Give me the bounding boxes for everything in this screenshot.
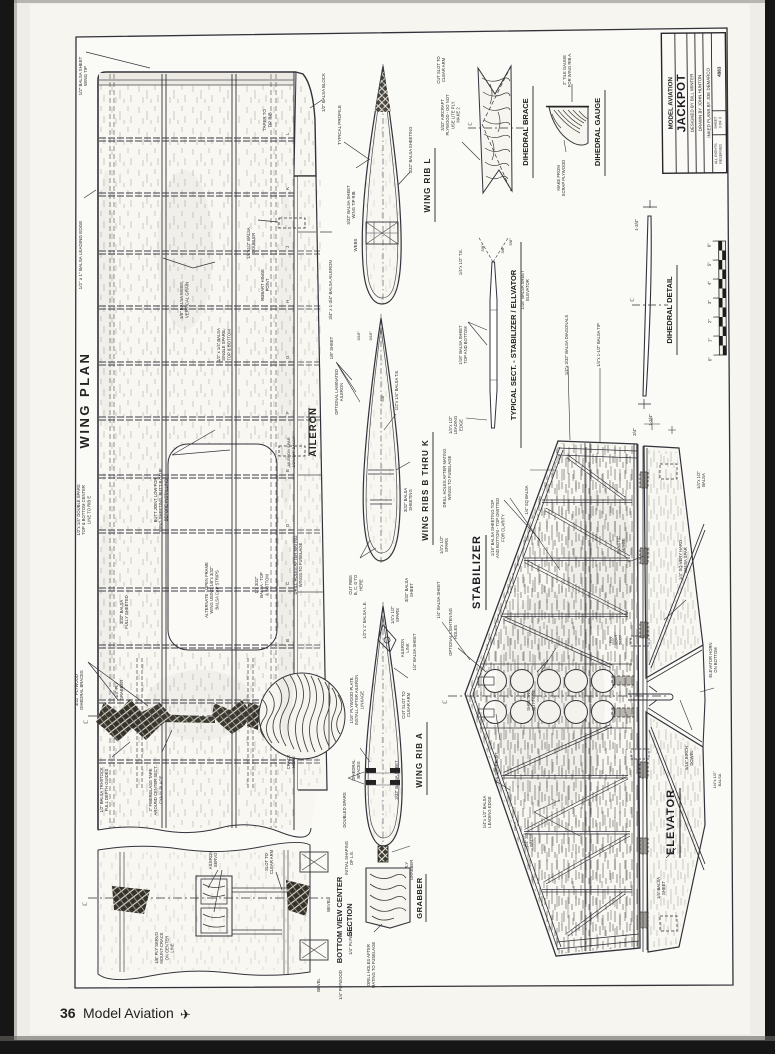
svg-text:FULLY SHEETED: FULLY SHEETED xyxy=(124,595,129,629)
svg-text:1/4" SQ BALSA: 1/4" SQ BALSA xyxy=(524,485,529,514)
svg-text:LINKAGE: LINKAGE xyxy=(359,691,364,709)
svg-text:1/4" PLYWOOD: 1/4" PLYWOOD xyxy=(338,970,343,1000)
svg-text:ℂ: ℂ xyxy=(83,720,90,724)
svg-text:ℂ: ℂ xyxy=(629,298,636,302)
svg-text:WINGS TO FUSELAGE: WINGS TO FUSELAGE xyxy=(447,456,452,501)
svg-text:DIHEDRAL GAUGE: DIHEDRAL GAUGE xyxy=(593,98,602,166)
svg-text:BEFORE INSTALLING: BEFORE INSTALLING xyxy=(163,479,168,522)
svg-text:✈: ✈ xyxy=(180,1007,191,1022)
svg-text:AILERON: AILERON xyxy=(339,383,344,401)
svg-text:3/16": 3/16" xyxy=(368,331,373,341)
svg-text:3/4": 3/4" xyxy=(632,428,637,436)
svg-text:WING TIP RIB: WING TIP RIB xyxy=(351,191,356,218)
svg-text:EDGE: EDGE xyxy=(458,419,463,431)
svg-text:RESERVED: RESERVED xyxy=(719,143,723,163)
svg-text:Model Aviation: Model Aviation xyxy=(83,1005,174,1021)
svg-text:2": 2" xyxy=(707,319,712,323)
svg-text:36: 36 xyxy=(60,1005,76,1021)
svg-text:HOLES: HOLES xyxy=(453,625,458,639)
svg-text:SHEETING: SHEETING xyxy=(408,489,413,510)
svg-text:3/32" BALSA SHEETING: 3/32" BALSA SHEETING xyxy=(408,127,413,174)
svg-text:SERVO: SERVO xyxy=(213,852,218,867)
svg-text:MAKE 2: MAKE 2 xyxy=(456,107,461,123)
svg-text:K: K xyxy=(285,187,290,190)
svg-text:DIHEDRAL BRACES: DIHEDRAL BRACES xyxy=(79,670,84,710)
svg-text:DIHEDRAL BRACE: DIHEDRAL BRACE xyxy=(521,98,530,165)
svg-text:BEVEL: BEVEL xyxy=(316,978,321,992)
svg-text:HERE: HERE xyxy=(358,579,363,591)
svg-text:BEVEL: BEVEL xyxy=(326,898,331,912)
svg-text:WEBS: WEBS xyxy=(353,238,358,251)
svg-text:1-3/4": 1-3/4" xyxy=(634,219,639,231)
svg-text:LINE TO RIB E: LINE TO RIB E xyxy=(86,496,91,524)
svg-text:FOR WING RIB A.: FOR WING RIB A. xyxy=(567,53,572,87)
svg-text:WINGS TO FUSELAGE: WINGS TO FUSELAGE xyxy=(298,543,303,588)
svg-text:4983: 4983 xyxy=(717,66,722,77)
svg-text:1/2"x 1" BALSA L.E.: 1/2"x 1" BALSA L.E. xyxy=(362,601,367,638)
svg-text:DIHEDRAL DETAIL: DIHEDRAL DETAIL xyxy=(665,276,674,344)
svg-text:BALSA: BALSA xyxy=(717,773,722,786)
svg-text:AILERON: AILERON xyxy=(308,407,319,457)
svg-text:LINK: LINK xyxy=(405,643,410,653)
svg-text:5/8": 5/8" xyxy=(380,394,385,402)
svg-text:WING RIB A: WING RIB A xyxy=(415,732,424,787)
svg-text:1/4"x 1-1/2" BALSA TIP: 1/4"x 1-1/2" BALSA TIP xyxy=(596,323,601,367)
svg-text:SLOT: SLOT xyxy=(618,634,623,645)
svg-text:GRABBER: GRABBER xyxy=(415,877,424,919)
svg-text:5": 5" xyxy=(707,262,712,266)
svg-text:FULL DEPTH GUIDES: FULL DEPTH GUIDES xyxy=(104,768,109,811)
svg-text:BALSA CAP STRIPS: BALSA CAP STRIPS xyxy=(214,570,219,609)
svg-text:BRACES: BRACES xyxy=(356,761,361,778)
svg-text:WING TIP: WING TIP xyxy=(83,66,88,86)
svg-text:MATING TO FUSELAGE: MATING TO FUSELAGE xyxy=(371,942,376,989)
svg-text:CLEAR ARM: CLEAR ARM xyxy=(269,849,274,874)
svg-text:SHEET: SHEET xyxy=(661,881,666,895)
svg-text:TOP & BOTTOM: TOP & BOTTOM xyxy=(226,329,231,361)
svg-text:WING RIB L: WING RIB L xyxy=(423,158,432,213)
svg-text:ELEVATOR: ELEVATOR xyxy=(525,279,530,301)
svg-text:DESIGNED BY BILL WINTER: DESIGNED BY BILL WINTER xyxy=(689,74,695,133)
svg-text:INKED PLANS BY JOE DEMARCO: INKED PLANS BY JOE DEMARCO xyxy=(706,68,712,138)
svg-text:3/32" BALSA SHEET: 3/32" BALSA SHEET xyxy=(394,760,399,800)
svg-text:TYPICAL PROFILE: TYPICAL PROFILE xyxy=(337,105,342,145)
svg-text:ℂ: ℂ xyxy=(467,122,474,126)
svg-text:STABILIZER: STABILIZER xyxy=(471,535,483,609)
svg-text:WING RIBS B THRU K: WING RIBS B THRU K xyxy=(421,439,430,541)
svg-text:HERE: HERE xyxy=(291,756,296,768)
svg-text:LEADING EDGE: LEADING EDGE xyxy=(487,796,492,828)
svg-text:SCRAP PLYWOOD: SCRAP PLYWOOD xyxy=(561,160,566,197)
svg-text:1/2" x 1" BALSA LEADING EDGE: 1/2" x 1" BALSA LEADING EDGE xyxy=(78,221,83,290)
svg-text:1/8" SHEET: 1/8" SHEET xyxy=(329,336,334,359)
svg-text:POINT: POINT xyxy=(265,278,270,291)
svg-text:0": 0" xyxy=(707,357,712,361)
svg-text:ON BOTTOM: ON BOTTOM xyxy=(713,647,718,673)
svg-text:DOWEL: DOWEL xyxy=(689,750,694,766)
svg-text:ALL RIGHTS: ALL RIGHTS xyxy=(714,143,718,164)
svg-text:OF L.E.: OF L.E. xyxy=(349,851,354,865)
svg-text:GRABBER: GRABBER xyxy=(119,680,124,700)
svg-text:& BOTTOM: & BOTTOM xyxy=(264,574,269,596)
svg-text:5/8": 5/8" xyxy=(508,238,513,246)
svg-text:3 OF 3: 3 OF 3 xyxy=(718,117,722,128)
svg-text:FIN SPAR SLOT: FIN SPAR SLOT xyxy=(494,752,499,784)
svg-text:1/4" PLYWOOD: 1/4" PLYWOOD xyxy=(348,925,353,955)
svg-text:FOR CLARITY: FOR CLARITY xyxy=(500,514,505,542)
svg-text:BOTTOM VIEW CENTER: BOTTOM VIEW CENTER xyxy=(335,876,344,963)
svg-text:1/2"x 1/4" BALSA T.E.: 1/2"x 1/4" BALSA T.E. xyxy=(394,370,399,411)
svg-text:BALSA: BALSA xyxy=(529,833,534,847)
svg-text:DRAWN BY JOHN HUNTON: DRAWN BY JOHN HUNTON xyxy=(697,75,703,132)
svg-text:1": 1" xyxy=(707,338,712,342)
svg-text:BALSA SPAR: BALSA SPAR xyxy=(683,547,688,573)
svg-text:TIP RIB: TIP RIB xyxy=(267,112,272,127)
svg-text:BALSA: BALSA xyxy=(701,473,706,487)
svg-text:ℂ: ℂ xyxy=(82,902,89,906)
svg-text:MODEL AVIATION: MODEL AVIATION xyxy=(667,76,675,129)
svg-text:1/4"x 1/2" T.E.: 1/4"x 1/2" T.E. xyxy=(458,249,463,275)
svg-text:JACKPOT: JACKPOT xyxy=(676,74,689,133)
svg-text:CYA IN PLACE: CYA IN PLACE xyxy=(158,776,163,805)
svg-text:CLEAR ARM: CLEAR ARM xyxy=(406,692,411,717)
svg-text:SPARS: SPARS xyxy=(395,608,400,622)
svg-text:ℂ: ℂ xyxy=(442,700,449,704)
svg-text:3/16": 3/16" xyxy=(356,331,361,341)
svg-text:SPARS: SPARS xyxy=(444,538,449,552)
svg-text:1/4" BALSA SHEET: 1/4" BALSA SHEET xyxy=(436,581,441,618)
svg-text:LINE: LINE xyxy=(170,943,175,953)
svg-text:ELEVATOR: ELEVATOR xyxy=(665,789,677,855)
svg-text:3/8": 3/8" xyxy=(500,246,505,254)
svg-text:3/4" x 1-3/4" BALSA AILERON: 3/4" x 1-3/4" BALSA AILERON xyxy=(328,260,333,319)
svg-text:3": 3" xyxy=(707,300,712,304)
svg-text:SHEET: SHEET xyxy=(714,116,718,129)
svg-text:6": 6" xyxy=(707,243,712,247)
svg-text:TYPICAL SECT. - STABILIZER /: TYPICAL SECT. - STABILIZER / ELLVATOR xyxy=(509,269,518,420)
svg-text:WING PLAN: WING PLAN xyxy=(77,352,92,449)
svg-text:CLEAR ARM: CLEAR ARM xyxy=(441,57,446,82)
svg-text:TAPER TO: TAPER TO xyxy=(262,109,267,131)
svg-text:4": 4" xyxy=(707,281,712,285)
svg-text:1/2" BALSA BLOCK: 1/2" BALSA BLOCK xyxy=(321,73,326,112)
svg-text:SHEET: SHEET xyxy=(409,583,414,597)
svg-text:5/8": 5/8" xyxy=(480,244,485,252)
svg-text:DOUBLER: DOUBLER xyxy=(251,233,256,253)
svg-text:1/4" BALSA SHEET: 1/4" BALSA SHEET xyxy=(412,633,417,670)
svg-text:DOUBLED SPARS: DOUBLED SPARS xyxy=(342,792,347,828)
svg-text:TOP AND BOTTOM: TOP AND BOTTOM xyxy=(463,326,468,364)
